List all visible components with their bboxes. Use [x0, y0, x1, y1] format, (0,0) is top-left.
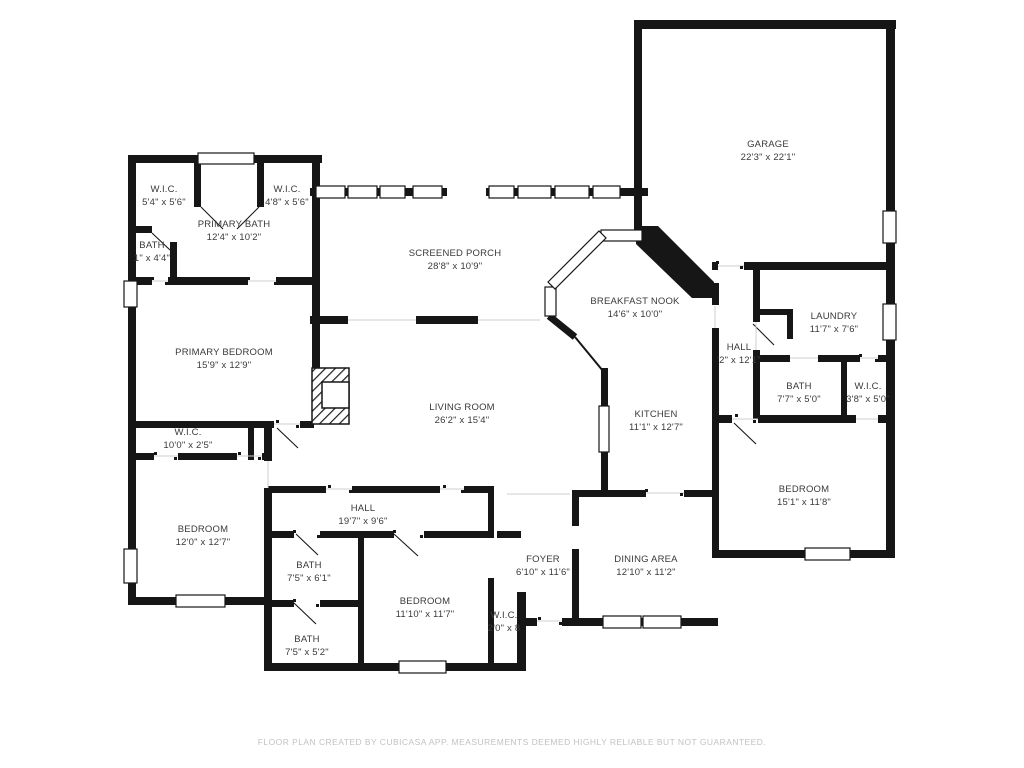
- room-dims: 15'9" x 12'9": [175, 359, 273, 372]
- room-label-bedroom-right: BEDROOM 15'1" x 11'8": [777, 483, 831, 509]
- room-name: BEDROOM: [777, 483, 831, 496]
- room-dims: 11'7" x 7'6": [810, 323, 859, 336]
- room-label-primary-bath: PRIMARY BATH 12'4" x 10'2": [198, 218, 271, 244]
- room-name: W.I.C.: [142, 183, 186, 196]
- room-dims: 14'6" x 10'0": [590, 308, 679, 321]
- room-dims: 7'7" x 5'0": [777, 393, 821, 406]
- room-label-wic-right: W.I.C. 3'8" x 5'0": [846, 380, 890, 406]
- room-name: GARAGE: [741, 138, 796, 151]
- room-dims: 11'10" x 11'7": [396, 608, 455, 621]
- room-dims: 3'8" x 5'0": [846, 393, 890, 406]
- room-label-wic-ne: W.I.C. 4'8" x 5'6": [265, 183, 309, 209]
- room-name: BREAKFAST NOOK: [590, 295, 679, 308]
- room-name: SCREENED PORCH: [409, 247, 502, 260]
- room-label-bath-nw: BATH 1" x 4'4": [134, 239, 170, 265]
- room-dims: 11'1" x 12'7": [629, 421, 683, 434]
- floor-plan-page: W.I.C. 5'4" x 5'6" W.I.C. 4'8" x 5'6" PR…: [0, 0, 1024, 768]
- room-dims: 28'8" x 10'9": [409, 260, 502, 273]
- room-label-hall-right: HALL '2" x 12'1": [717, 341, 761, 367]
- room-dims: 2'0" x 8: [488, 622, 521, 635]
- room-name: LAUNDRY: [810, 310, 859, 323]
- room-label-bath-hall: BATH 7'5" x 6'1": [287, 559, 331, 585]
- room-label-laundry: LAUNDRY 11'7" x 7'6": [810, 310, 859, 336]
- room-name: BATH: [134, 239, 170, 252]
- room-label-screened-porch: SCREENED PORCH 28'8" x 10'9": [409, 247, 502, 273]
- room-dims: 4'8" x 5'6": [265, 196, 309, 209]
- room-label-bath-right: BATH 7'7" x 5'0": [777, 380, 821, 406]
- room-dims: 7'5" x 6'1": [287, 572, 331, 585]
- room-label-kitchen: KITCHEN 11'1" x 12'7": [629, 408, 683, 434]
- door-ticks-group: [151, 261, 878, 625]
- room-name: KITCHEN: [629, 408, 683, 421]
- room-label-breakfast-nook: BREAKFAST NOOK 14'6" x 10'0": [590, 295, 679, 321]
- room-name: HALL: [717, 341, 761, 354]
- room-label-bedroom-mid: BEDROOM 11'10" x 11'7": [396, 595, 455, 621]
- room-name: PRIMARY BEDROOM: [175, 346, 273, 359]
- room-name: LIVING ROOM: [429, 401, 495, 414]
- room-label-foyer: FOYER 6'10" x 11'6": [516, 553, 570, 579]
- room-dims: '2" x 12'1": [717, 354, 761, 367]
- room-name: BEDROOM: [176, 523, 231, 536]
- room-name: BATH: [777, 380, 821, 393]
- room-name: PRIMARY BATH: [198, 218, 271, 231]
- room-dims: 10'0" x 2'5": [163, 439, 212, 452]
- room-name: FOYER: [516, 553, 570, 566]
- room-dims: 15'1" x 11'8": [777, 496, 831, 509]
- room-dims: 12'4" x 10'2": [198, 231, 271, 244]
- room-dims: 7'5" x 5'2": [285, 646, 329, 659]
- room-name: BATH: [287, 559, 331, 572]
- room-name: HALL: [338, 502, 387, 515]
- room-dims: 1" x 4'4": [134, 252, 170, 265]
- room-label-primary-bedroom: PRIMARY BEDROOM 15'9" x 12'9": [175, 346, 273, 372]
- room-label-wic-bottom: W.I.C. 2'0" x 8: [488, 609, 521, 635]
- room-dims: 22'3" x 22'1": [741, 151, 796, 164]
- room-label-wic-strip: W.I.C. 10'0" x 2'5": [163, 426, 212, 452]
- room-label-bedroom-left: BEDROOM 12'0" x 12'7": [176, 523, 231, 549]
- room-label-wic-nw: W.I.C. 5'4" x 5'6": [142, 183, 186, 209]
- room-label-hall-main: HALL 19'7" x 9'6": [338, 502, 387, 528]
- room-label-bath-bottom: BATH 7'5" x 5'2": [285, 633, 329, 659]
- room-label-dining-area: DINING AREA 12'10" x 11'2": [614, 553, 677, 579]
- room-name: BATH: [285, 633, 329, 646]
- room-dims: 6'10" x 11'6": [516, 566, 570, 579]
- room-name: W.I.C.: [163, 426, 212, 439]
- room-label-garage: GARAGE 22'3" x 22'1": [741, 138, 796, 164]
- room-dims: 12'0" x 12'7": [176, 536, 231, 549]
- room-name: W.I.C.: [488, 609, 521, 622]
- room-dims: 5'4" x 5'6": [142, 196, 186, 209]
- room-dims: 26'2" x 15'4": [429, 414, 495, 427]
- room-dims: 12'10" x 11'2": [614, 566, 677, 579]
- room-label-living-room: LIVING ROOM 26'2" x 15'4": [429, 401, 495, 427]
- room-name: W.I.C.: [265, 183, 309, 196]
- room-name: BEDROOM: [396, 595, 455, 608]
- footer-disclaimer: FLOOR PLAN CREATED BY CUBICASA APP. MEAS…: [0, 737, 1024, 747]
- fireplace: [312, 368, 349, 424]
- opening-lines-group: [152, 266, 878, 621]
- room-name: DINING AREA: [614, 553, 677, 566]
- room-name: W.I.C.: [846, 380, 890, 393]
- room-dims: 19'7" x 9'6": [338, 515, 387, 528]
